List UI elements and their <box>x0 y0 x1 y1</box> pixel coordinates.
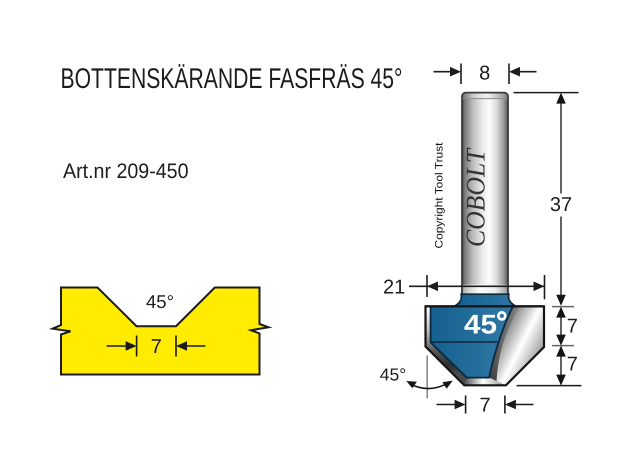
svg-text:Art.nr 209-450: Art.nr 209-450 <box>63 160 189 183</box>
svg-text:37: 37 <box>550 194 572 216</box>
svg-text:8: 8 <box>479 63 490 85</box>
svg-text:COBOLT: COBOLT <box>461 147 491 247</box>
svg-text:7: 7 <box>151 336 162 358</box>
svg-text:7: 7 <box>567 316 578 338</box>
svg-text:7: 7 <box>567 354 578 376</box>
svg-text:45°: 45° <box>380 364 406 384</box>
svg-text:45: 45 <box>464 309 497 339</box>
svg-text:7: 7 <box>479 395 490 417</box>
svg-text:BOTTENSKÄRANDE FASFRÄS 45°: BOTTENSKÄRANDE FASFRÄS 45° <box>61 63 403 95</box>
svg-text:45°: 45° <box>146 291 174 312</box>
svg-text:21: 21 <box>383 277 405 299</box>
svg-text:Copyright Tool Trust: Copyright Tool Trust <box>433 143 445 249</box>
